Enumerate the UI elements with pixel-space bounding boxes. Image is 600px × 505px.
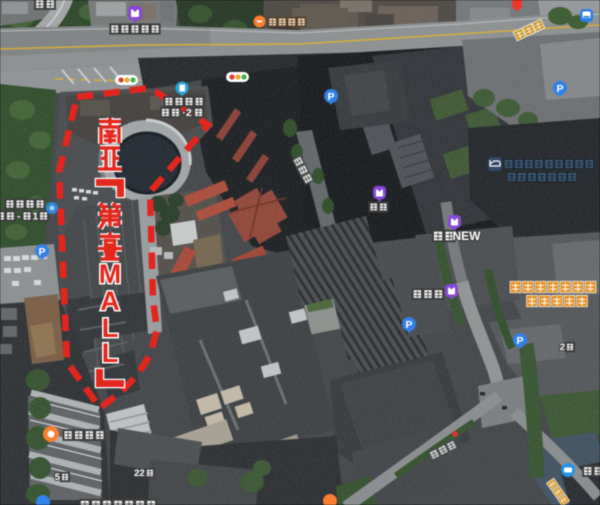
svg-text:P: P	[405, 319, 412, 331]
svg-text:P: P	[556, 83, 563, 95]
svg-text:M: M	[99, 259, 122, 289]
svg-text:22: 22	[134, 468, 145, 479]
svg-text:L: L	[102, 338, 119, 368]
svg-text:P: P	[516, 335, 523, 347]
svg-text:·2: ·2	[182, 107, 191, 119]
svg-text:P: P	[38, 246, 45, 258]
svg-text:2: 2	[560, 342, 565, 353]
svg-text:5: 5	[55, 472, 61, 483]
svg-text:-: -	[17, 211, 21, 223]
svg-text:NEW: NEW	[453, 229, 482, 243]
svg-text:P: P	[327, 91, 334, 103]
svg-text:1: 1	[32, 211, 38, 223]
svg-text:A: A	[100, 286, 120, 316]
